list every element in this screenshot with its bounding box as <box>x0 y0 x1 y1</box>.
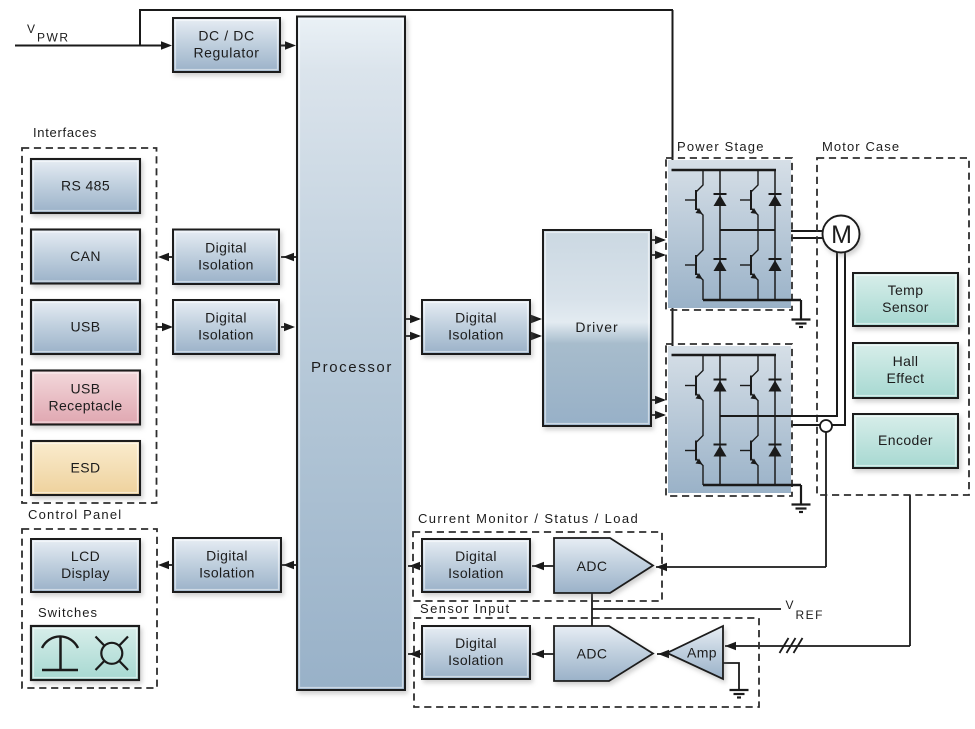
svg-text:Digital: Digital <box>206 548 248 564</box>
svg-text:Isolation: Isolation <box>199 565 255 581</box>
svg-text:Display: Display <box>61 565 110 581</box>
svg-text:Interfaces: Interfaces <box>33 125 97 140</box>
svg-text:V: V <box>27 22 35 36</box>
svg-text:REF: REF <box>796 608 825 622</box>
svg-text:Digital: Digital <box>205 310 247 326</box>
svg-text:Processor: Processor <box>311 359 393 376</box>
svg-text:Isolation: Isolation <box>448 565 504 581</box>
svg-text:USB: USB <box>71 319 101 335</box>
svg-text:RS 485: RS 485 <box>61 178 110 194</box>
svg-text:Isolation: Isolation <box>198 257 254 273</box>
svg-text:Isolation: Isolation <box>198 327 254 343</box>
svg-text:ADC: ADC <box>577 646 608 662</box>
svg-text:Digital: Digital <box>455 635 497 651</box>
svg-text:Effect: Effect <box>887 370 925 386</box>
svg-text:Encoder: Encoder <box>878 432 933 448</box>
svg-text:Hall: Hall <box>893 353 919 369</box>
svg-text:Power Stage: Power Stage <box>677 139 765 154</box>
svg-text:Temp: Temp <box>888 282 924 298</box>
svg-text:Isolation: Isolation <box>448 327 504 343</box>
svg-text:LCD: LCD <box>71 548 100 564</box>
svg-text:Digital: Digital <box>205 240 247 256</box>
svg-text:M: M <box>831 221 852 249</box>
svg-text:Driver: Driver <box>575 319 618 335</box>
svg-text:CAN: CAN <box>70 248 101 264</box>
svg-text:Regulator: Regulator <box>193 45 259 61</box>
svg-text:Switches: Switches <box>38 605 98 620</box>
svg-text:Current Monitor / Status / Loa: Current Monitor / Status / Load <box>418 511 639 526</box>
svg-text:ADC: ADC <box>577 558 608 574</box>
svg-text:Control Panel: Control Panel <box>28 507 122 522</box>
svg-text:USB: USB <box>71 381 101 397</box>
svg-text:DC / DC: DC / DC <box>198 28 254 44</box>
svg-text:Digital: Digital <box>455 310 497 326</box>
svg-text:PWR: PWR <box>37 31 70 45</box>
svg-text:Isolation: Isolation <box>448 652 504 668</box>
svg-text:Sensor: Sensor <box>882 299 929 315</box>
svg-text:Amp: Amp <box>687 645 717 661</box>
svg-text:ESD: ESD <box>71 460 101 476</box>
svg-text:Motor Case: Motor Case <box>822 139 900 154</box>
svg-text:Digital: Digital <box>455 548 497 564</box>
svg-text:Receptacle: Receptacle <box>48 398 122 414</box>
svg-text:V: V <box>786 598 794 612</box>
svg-text:Sensor Input: Sensor Input <box>420 601 511 616</box>
